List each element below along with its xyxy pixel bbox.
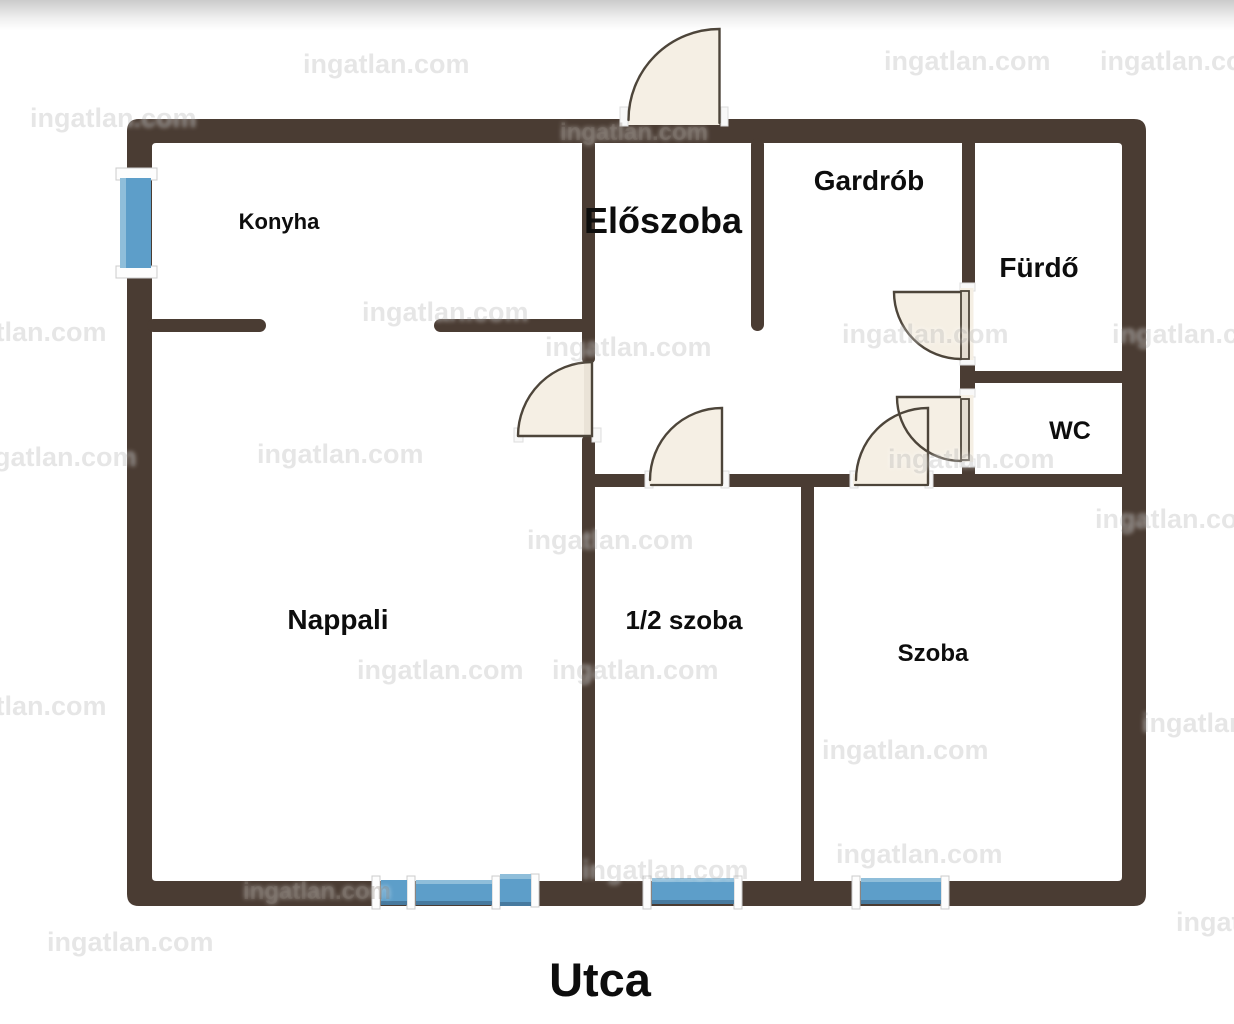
svg-text:ingatlan.com: ingatlan.com [1142,708,1234,738]
svg-text:ingatlan.com: ingatlan.com [0,442,137,472]
svg-text:ingatlan.com: ingatlan.com [1095,504,1234,534]
svg-text:ingatlan.com: ingatlan.com [822,735,989,765]
svg-text:ingatlan.com: ingatlan.com [888,444,1055,474]
svg-text:ingatlan.com: ingatlan.com [836,839,1003,869]
svg-text:WC: WC [1049,417,1091,445]
svg-text:ingatlan.com: ingatlan.com [0,317,107,347]
svg-text:Nappali: Nappali [287,604,388,635]
svg-text:ingatlan.com: ingatlan.com [560,119,708,146]
svg-text:ingatlan.com: ingatlan.com [1176,907,1234,937]
svg-text:Gardrób: Gardrób [814,165,924,196]
svg-text:Fürdő: Fürdő [999,252,1078,283]
svg-text:ingatlan.com: ingatlan.com [30,103,197,133]
svg-text:ingatlan.com: ingatlan.com [545,332,712,362]
svg-text:ingatlan.com: ingatlan.com [357,655,524,685]
svg-text:Konyha: Konyha [239,209,320,234]
svg-text:Előszoba: Előszoba [584,200,743,241]
svg-text:ingatlan.com: ingatlan.com [0,691,107,721]
svg-text:ingatlan.com: ingatlan.com [47,927,214,957]
svg-text:Szoba: Szoba [898,640,969,667]
svg-text:ingatlan.com: ingatlan.com [362,297,529,327]
svg-text:ingatlan.com: ingatlan.com [842,319,1009,349]
svg-text:ingatlan.com: ingatlan.com [884,46,1051,76]
svg-text:1/2 szoba: 1/2 szoba [625,605,743,635]
svg-text:ingatlan.com: ingatlan.com [303,49,470,79]
svg-text:ingatlan.com: ingatlan.com [243,878,391,905]
svg-text:ingatlan.com: ingatlan.com [527,525,694,555]
svg-text:ingatlan.com: ingatlan.com [257,439,424,469]
svg-text:ingatlan.com: ingatlan.com [1112,319,1234,349]
svg-text:ingatlan.com: ingatlan.com [552,655,719,685]
svg-text:ingatlan.com: ingatlan.com [1100,46,1234,76]
svg-text:ingatlan.com: ingatlan.com [582,855,749,885]
svg-text:Utca: Utca [549,953,652,1006]
